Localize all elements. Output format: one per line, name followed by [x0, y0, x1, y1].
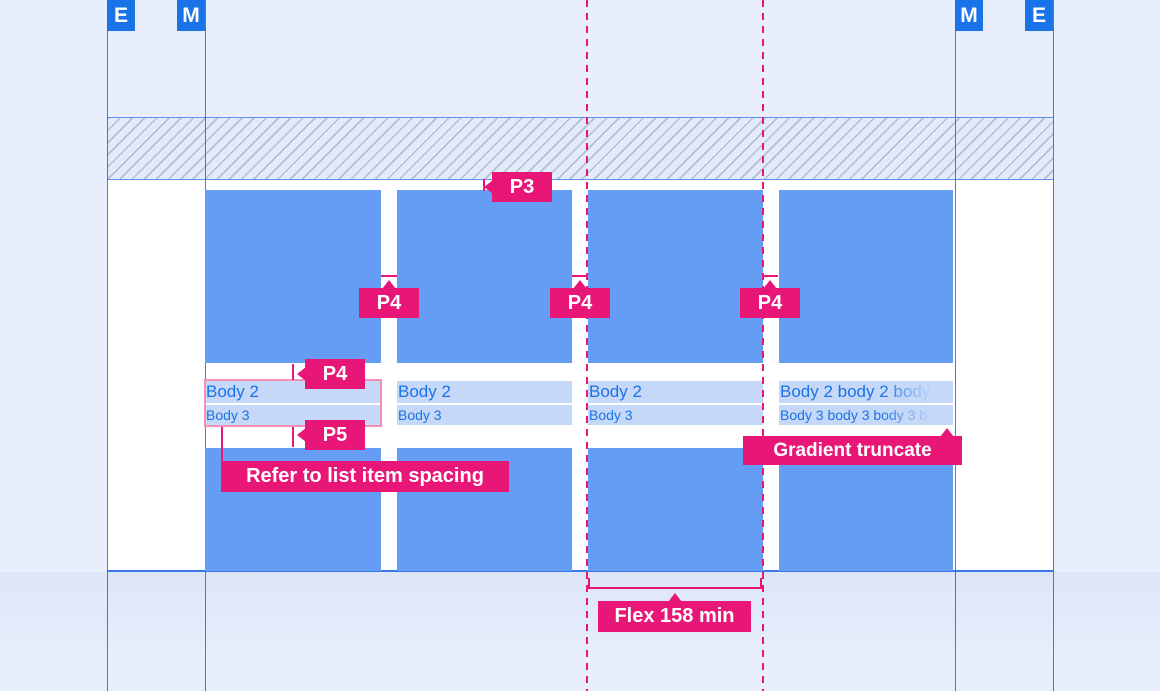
measure-tick: [381, 275, 397, 277]
card-image-bottom: [588, 448, 763, 571]
measure-tick: [292, 364, 294, 380]
caret-up-icon: [940, 428, 954, 437]
edge-keyline-left: [107, 0, 108, 691]
card-2: Body 2 Body 3: [397, 190, 572, 571]
body2-text-truncated: Body 2 body 2 body 2: [779, 381, 953, 403]
p5-label: P5: [323, 424, 347, 447]
card-3: Body 2 Body 3: [588, 190, 763, 571]
footer-region: [0, 572, 1160, 662]
caret-up-icon: [382, 280, 396, 289]
body2-text: Body 2: [397, 381, 572, 403]
p4-item-badge: P4: [305, 359, 365, 389]
body3-text: Body 3: [397, 405, 572, 425]
list-spacing-note-label: Refer to list item spacing: [246, 465, 484, 488]
card-image-top: [397, 190, 572, 363]
flex-min-label: Flex 158 min: [614, 605, 734, 628]
gradient-fade-overlay: [881, 405, 953, 425]
p4-label: P4: [568, 292, 592, 315]
body2-text: Body 2: [588, 381, 763, 403]
p4-label: P4: [377, 292, 401, 315]
caret-left-icon: [297, 367, 306, 381]
caret-up-icon: [573, 280, 587, 289]
margin-marker-right: M: [955, 0, 983, 31]
gradient-truncate-badge: Gradient truncate: [743, 436, 962, 465]
p4-gutter-badge-1: P4: [359, 288, 419, 318]
measure-tick: [762, 275, 778, 277]
gradient-truncate-label: Gradient truncate: [773, 440, 931, 462]
edge-keyline-right: [1053, 0, 1054, 691]
p4-label: P4: [323, 363, 347, 386]
body3-text-truncated: Body 3 body 3 body 3 bo: [779, 405, 953, 425]
caret-left-icon: [484, 180, 493, 194]
flex-boundary-line-right: [762, 0, 764, 691]
margin-keyline-right: [955, 0, 956, 691]
card-image-top: [588, 190, 763, 363]
p5-item-badge: P5: [305, 420, 365, 450]
list-spacing-note-badge: Refer to list item spacing: [221, 461, 509, 492]
p3-label: P3: [510, 176, 534, 199]
p4-label: P4: [758, 292, 782, 315]
card-image-bottom: [779, 448, 953, 571]
measure-tick: [292, 427, 294, 447]
measure-tick: [572, 275, 588, 277]
bracket-end-right: [760, 578, 762, 588]
gradient-fade-overlay: [881, 381, 953, 403]
connector-line: [221, 427, 223, 463]
p3-badge: P3: [492, 172, 552, 202]
layout-spec-canvas: Body 2 Body 3 Body 2 Body 3 Body 2 Body …: [0, 0, 1160, 691]
caret-up-icon: [668, 593, 682, 602]
card-4-truncated: Body 2 body 2 body 2 Body 3 body 3 body …: [779, 190, 953, 571]
bracket-end-left: [588, 578, 590, 588]
caret-up-icon: [763, 280, 777, 289]
flex-min-badge: Flex 158 min: [598, 601, 751, 632]
card-image-top: [779, 190, 953, 363]
body3-text: Body 3: [588, 405, 763, 425]
edge-marker-right: E: [1025, 0, 1053, 31]
p4-gutter-badge-2: P4: [550, 288, 610, 318]
card-image-top: [205, 190, 381, 363]
p4-gutter-badge-3: P4: [740, 288, 800, 318]
edge-marker-left: E: [107, 0, 135, 31]
caret-left-icon: [297, 428, 306, 442]
flex-width-bracket: [588, 587, 762, 589]
app-bar-placeholder: [107, 117, 1053, 180]
margin-marker-left: M: [177, 0, 205, 31]
